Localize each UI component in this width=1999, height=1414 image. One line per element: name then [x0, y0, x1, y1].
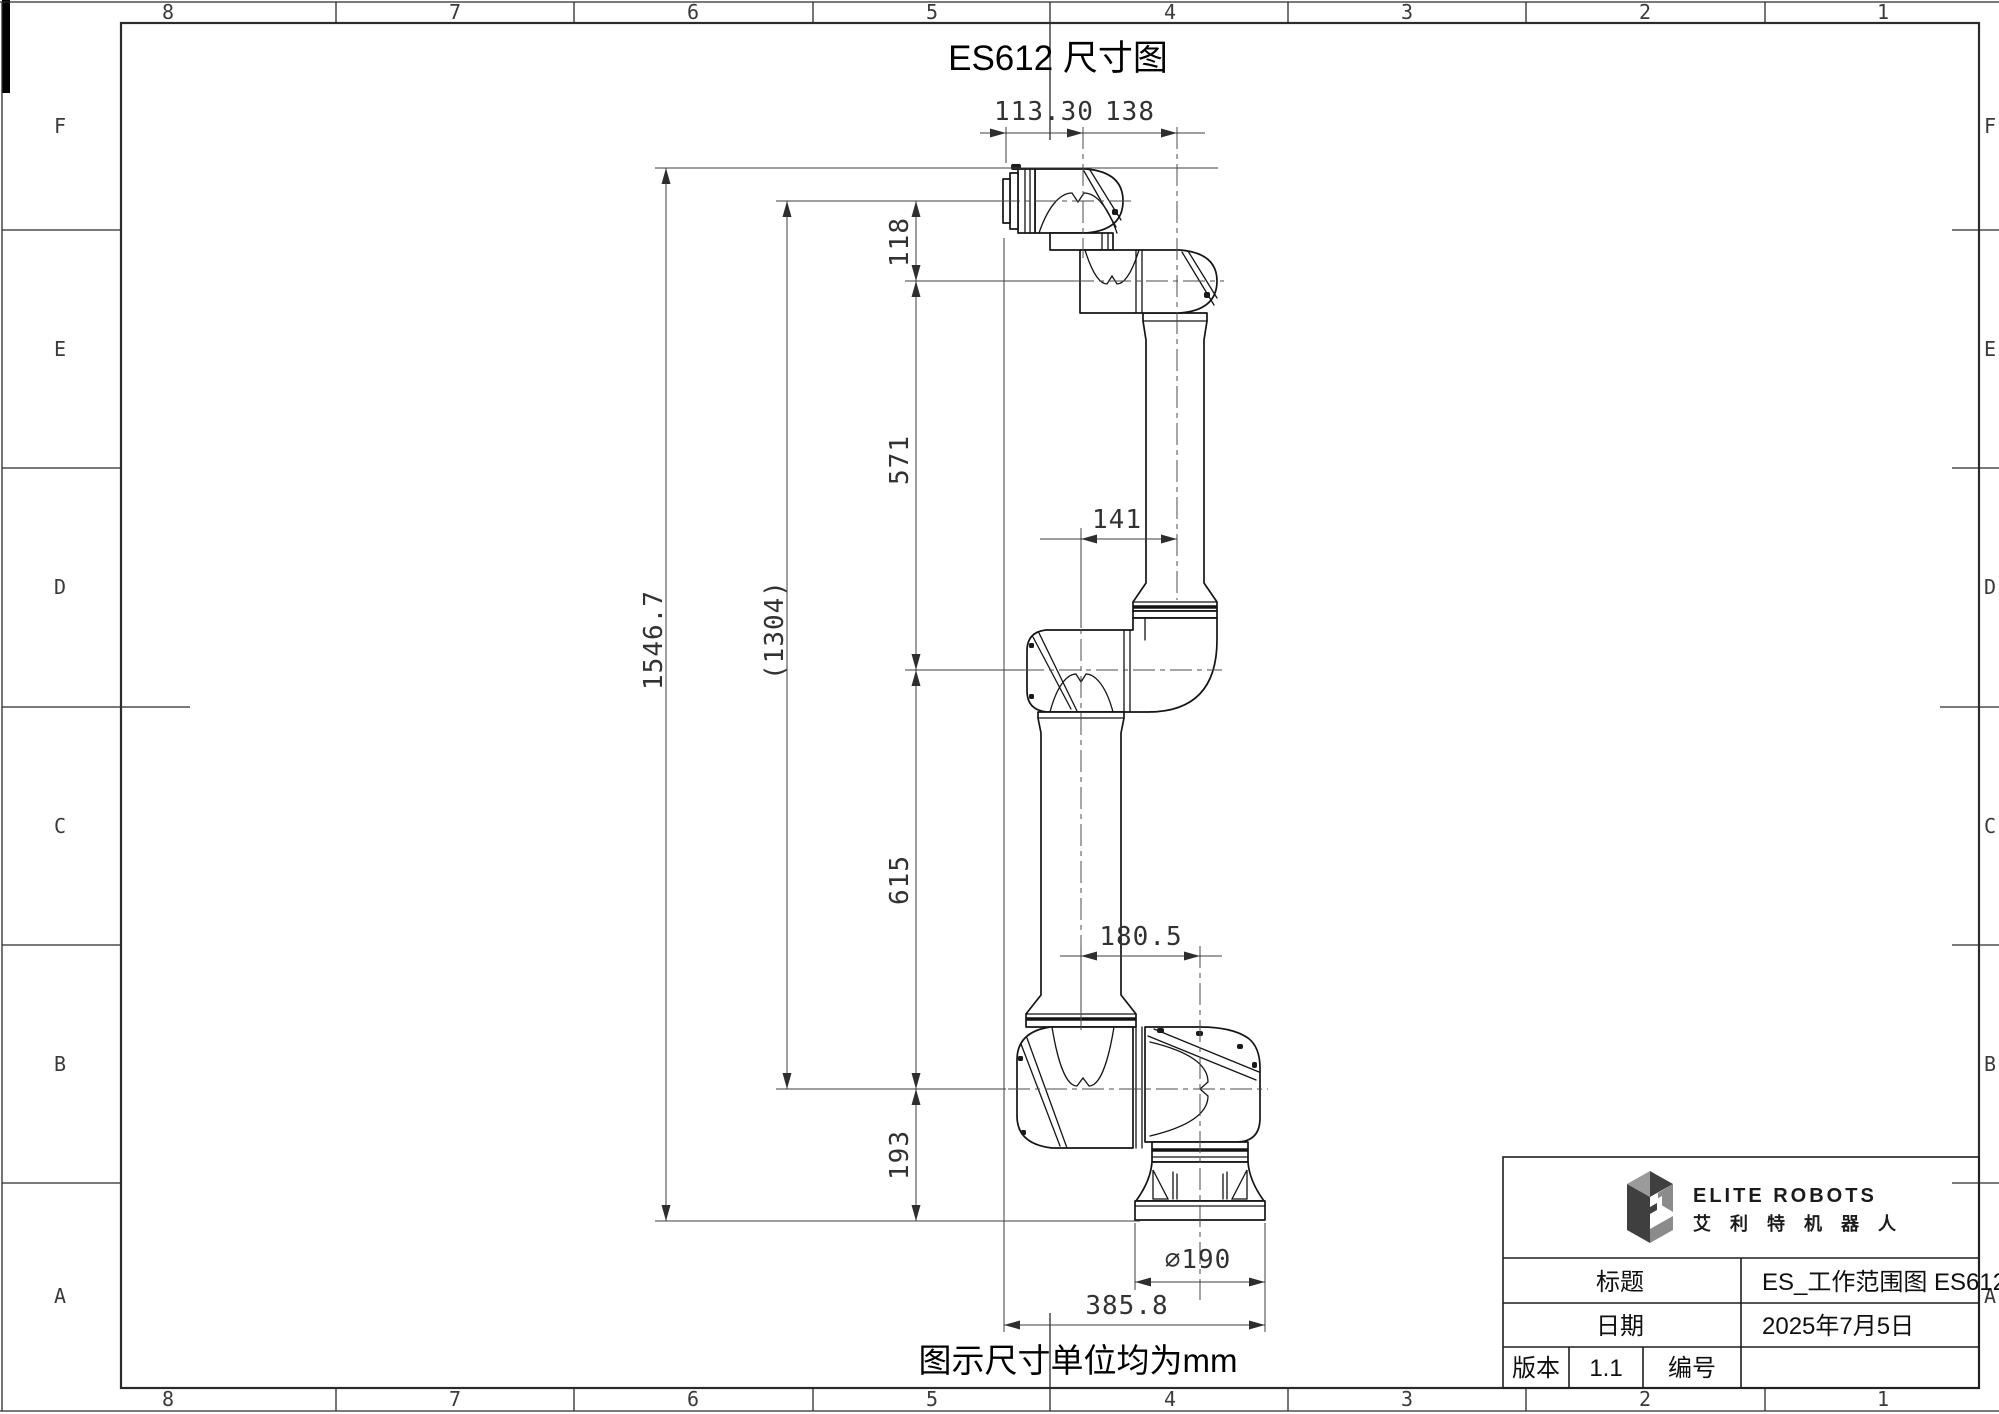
dim-base-diameter: ∅190: [1165, 1245, 1232, 1275]
zone-col-bottom-8: 8: [162, 1387, 174, 1411]
title-label: 标题: [1596, 1269, 1644, 1296]
cad-canvas: 8877665544332211FFEEDDCCBBAA ES612 尺寸图 图…: [0, 0, 1999, 1414]
dim-seg-base: 193: [885, 1130, 915, 1180]
dim-seg-upperarm: 615: [885, 855, 915, 905]
sheet-corner-mark: [2, 0, 10, 93]
zone-row-right-E: E: [1984, 337, 1996, 361]
zone-row-left-A: A: [54, 1284, 66, 1308]
dim-top-right: 138: [1105, 97, 1155, 127]
zone-col-bottom-1: 1: [1877, 1387, 1889, 1411]
dim-overall-height: 1546.7: [639, 590, 669, 690]
units-note: 图示尺寸单位均为mm: [919, 1342, 1238, 1379]
brand-name-cn: 艾 利 特 机 器 人: [1693, 1213, 1903, 1234]
zone-row-left-D: D: [54, 575, 66, 599]
date-value: 2025年7月5日: [1762, 1313, 1914, 1340]
version-label: 版本: [1512, 1355, 1560, 1382]
zone-row-left-E: E: [54, 337, 66, 361]
zone-col-bottom-2: 2: [1639, 1387, 1651, 1411]
shoulder-block: [1145, 1027, 1260, 1142]
zone-col-bottom-3: 3: [1401, 1387, 1413, 1411]
zone-col-top-7: 7: [449, 0, 461, 24]
zone-row-right-B: B: [1984, 1052, 1996, 1076]
dim-top-left: 113.30: [994, 97, 1094, 127]
dim-seg-forearm: 571: [885, 435, 915, 485]
zone-col-top-5: 5: [926, 0, 938, 24]
zone-col-bottom-4: 4: [1164, 1387, 1176, 1411]
elbow-ring: [1133, 611, 1217, 618]
elite-robots-logo: [1627, 1171, 1673, 1243]
zone-col-top-2: 2: [1639, 0, 1651, 24]
drawing-sheet: 8877665544332211FFEEDDCCBBAA ES612 尺寸图 图…: [0, 0, 1999, 1414]
title-value: ES_工作范围图 ES612: [1762, 1269, 1999, 1296]
number-label: 编号: [1668, 1355, 1716, 1382]
zone-row-right-D: D: [1984, 575, 1996, 599]
dim-elbow-offset: 141: [1092, 505, 1142, 535]
shoulder-housing: [1017, 1027, 1133, 1148]
forearm-tube: [1133, 313, 1217, 611]
wrist-connector: [1050, 233, 1113, 250]
zone-row-left-F: F: [54, 114, 66, 138]
zone-col-top-4: 4: [1164, 0, 1176, 24]
zone-col-bottom-6: 6: [687, 1387, 699, 1411]
version-value: 1.1: [1589, 1355, 1622, 1382]
zone-col-bottom-7: 7: [449, 1387, 461, 1411]
dim-reach-ref: (1304): [760, 580, 790, 680]
zone-row-left-B: B: [54, 1052, 66, 1076]
dim-overall-width: 385.8: [1085, 1291, 1168, 1321]
brand-name-en: ELITE ROBOTS: [1693, 1185, 1877, 1207]
dim-seg-top: 118: [885, 217, 915, 267]
zone-col-top-8: 8: [162, 0, 174, 24]
dim-shoulder-offset: 180.5: [1099, 922, 1182, 952]
zone-col-top-3: 3: [1401, 0, 1413, 24]
zone-col-bottom-5: 5: [926, 1387, 938, 1411]
zone-row-left-C: C: [54, 814, 66, 838]
date-label: 日期: [1596, 1313, 1644, 1340]
zone-row-right-F: F: [1984, 114, 1996, 138]
zone-row-right-C: C: [1984, 814, 1996, 838]
drawing-title: ES612 尺寸图: [948, 39, 1168, 78]
elbow-joint: [1027, 618, 1217, 712]
zone-col-top-1: 1: [1877, 0, 1889, 24]
zone-col-top-6: 6: [687, 0, 699, 24]
